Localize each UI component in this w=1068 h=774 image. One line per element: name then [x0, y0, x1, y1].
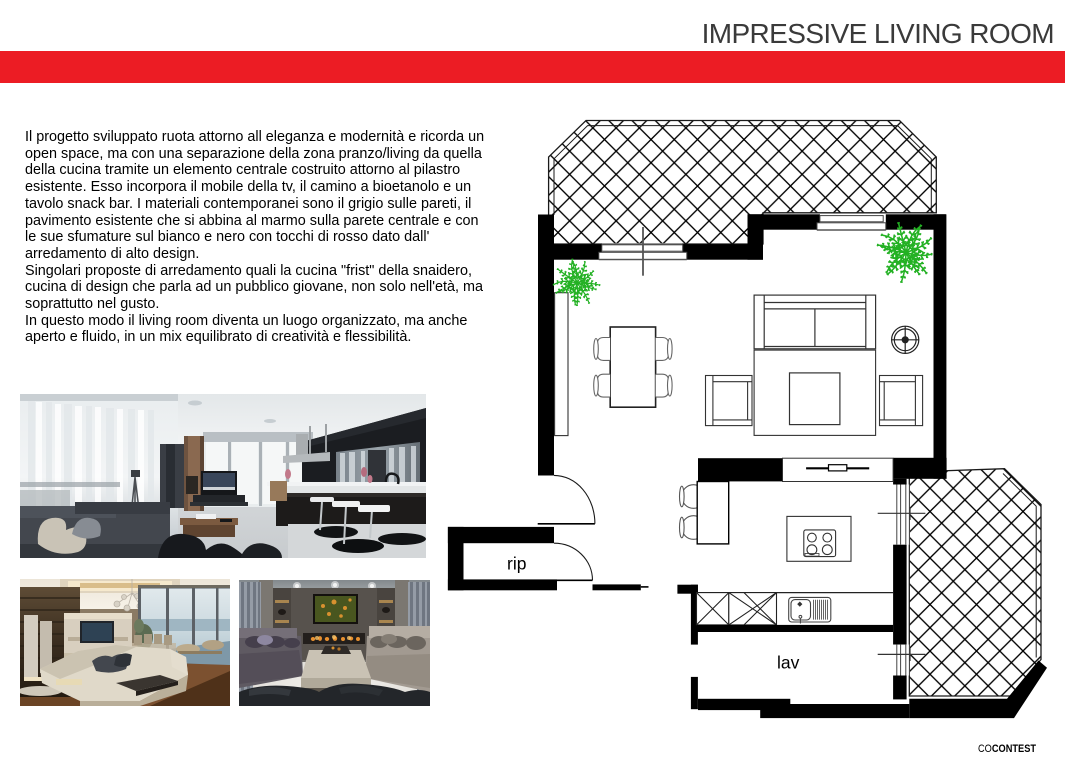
svg-text:lav: lav: [777, 653, 800, 673]
svg-text:rip: rip: [507, 554, 526, 574]
